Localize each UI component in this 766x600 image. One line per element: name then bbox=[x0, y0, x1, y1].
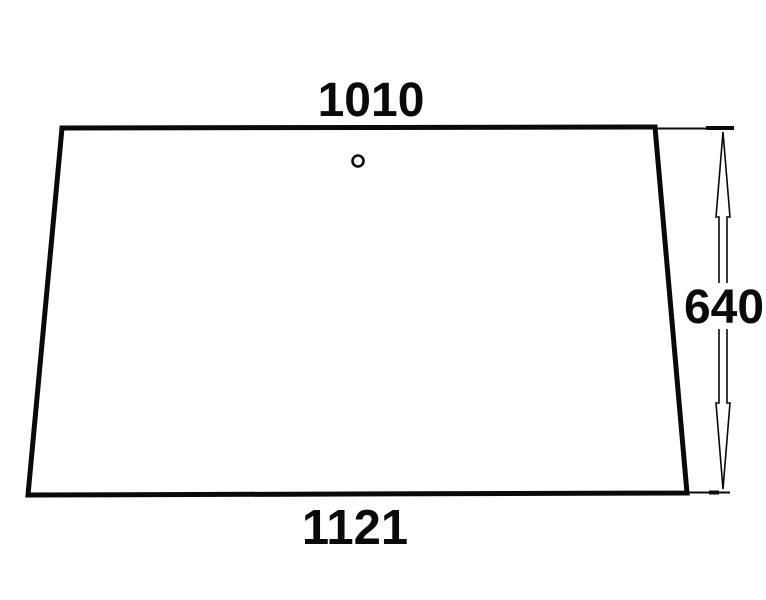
height-dimension-label: 640 bbox=[684, 281, 764, 334]
dimension-drawing: 1010 1121 640 bbox=[0, 0, 766, 600]
top-dimension-label: 1010 bbox=[318, 74, 425, 127]
bottom-dimension-label: 1121 bbox=[302, 501, 408, 555]
panel-outline bbox=[28, 127, 687, 495]
drawing-canvas: 1010 1121 640 bbox=[0, 0, 766, 600]
mounting-hole-icon bbox=[353, 156, 364, 167]
